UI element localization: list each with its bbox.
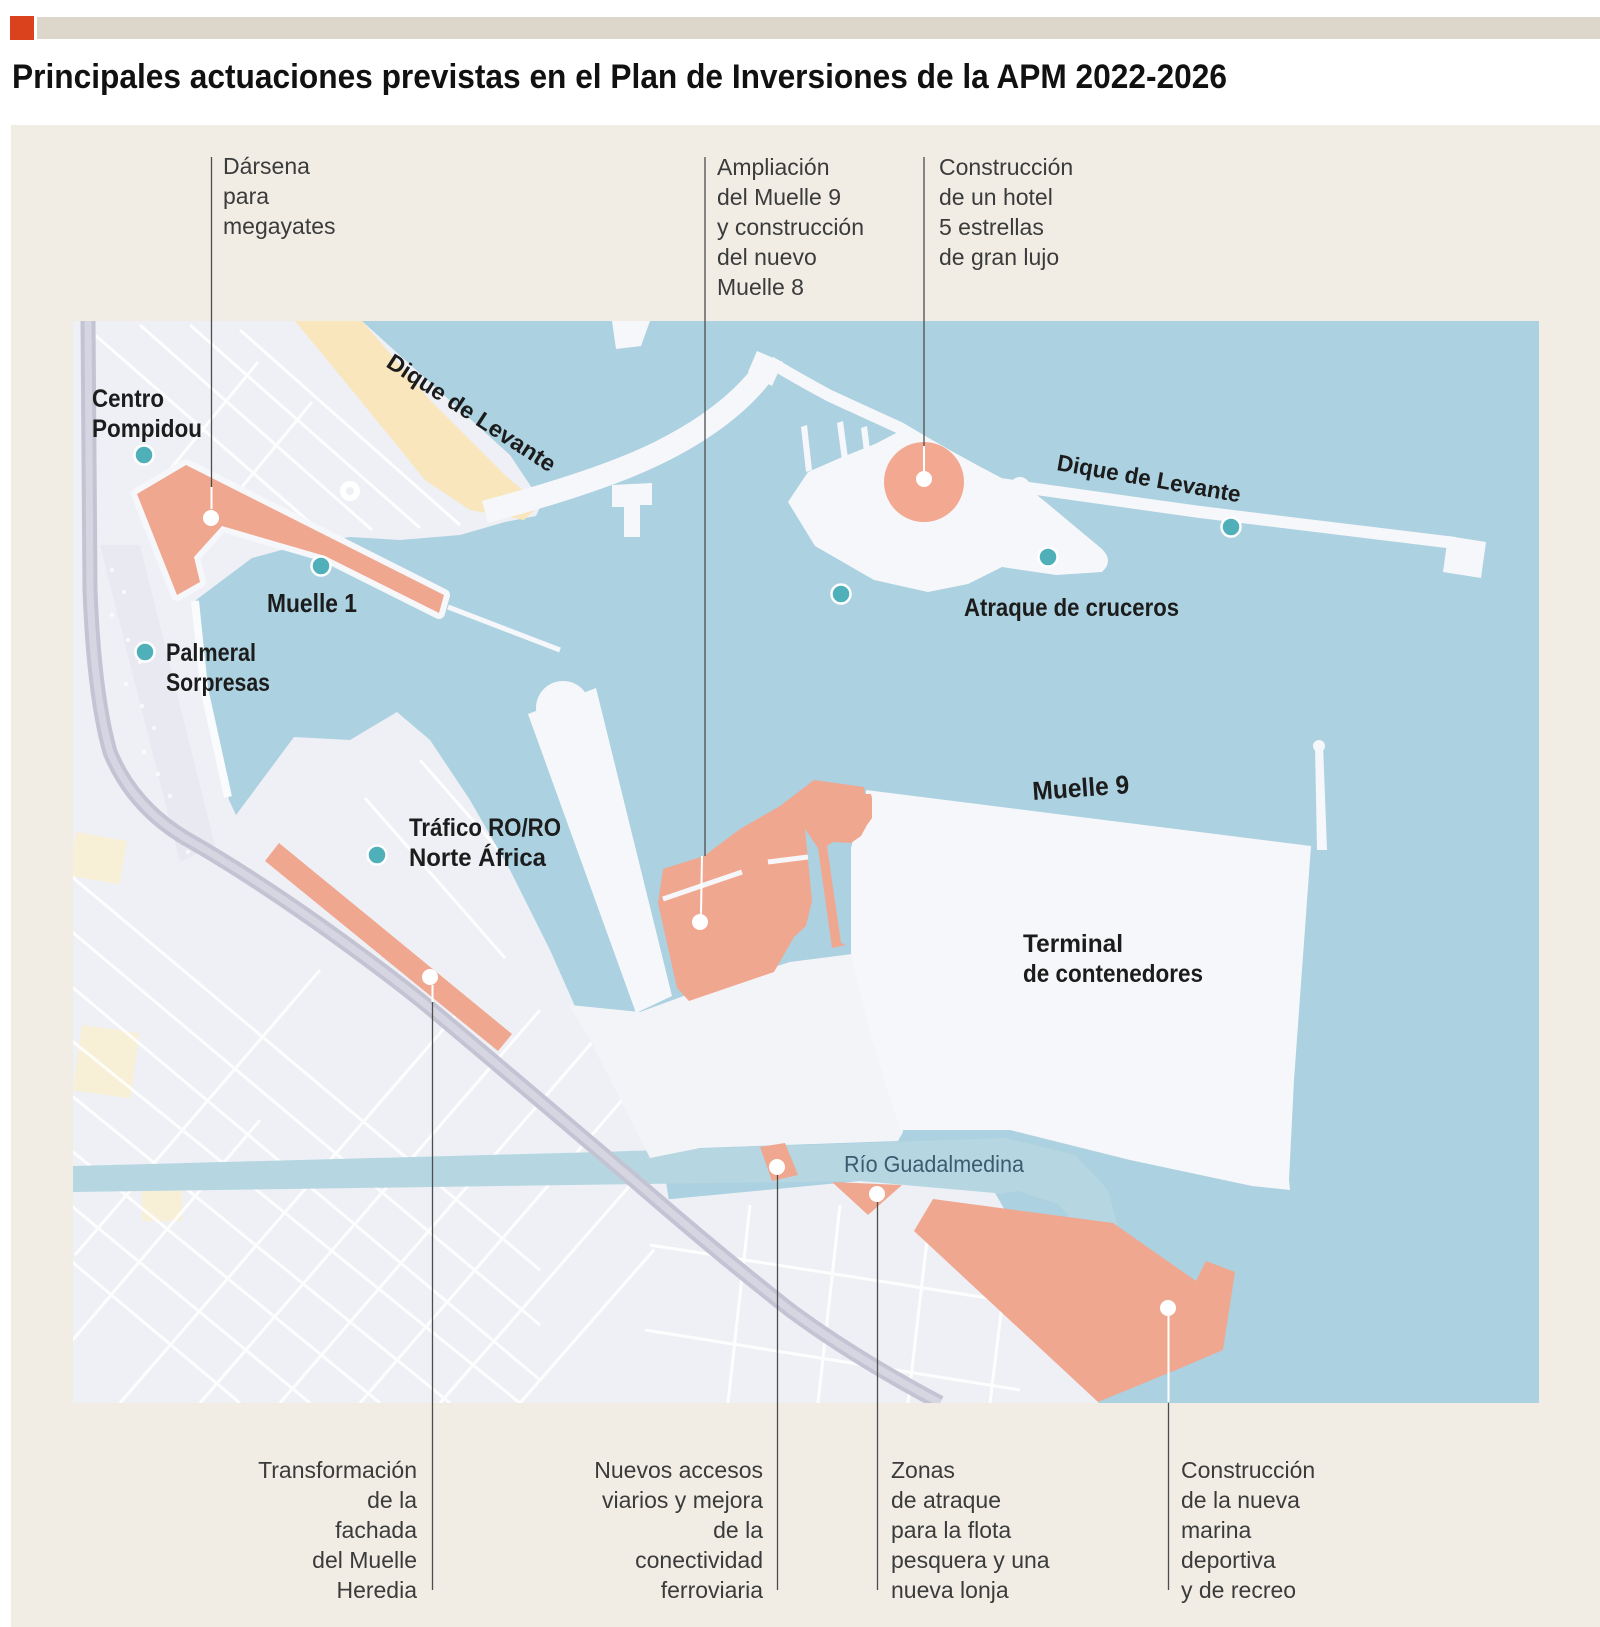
svg-text:pesquera y una: pesquera y una (891, 1547, 1050, 1573)
svg-text:fachada: fachada (335, 1517, 417, 1543)
svg-text:Río Guadalmedina: Río Guadalmedina (844, 1151, 1024, 1177)
svg-text:de gran lujo: de gran lujo (939, 244, 1059, 270)
svg-text:y construcción: y construcción (717, 214, 864, 240)
svg-text:Atraque de cruceros: Atraque de cruceros (964, 594, 1179, 622)
svg-text:Norte África: Norte África (409, 843, 547, 872)
svg-text:viarios y mejora: viarios y mejora (602, 1487, 763, 1513)
svg-text:ferroviaria: ferroviaria (661, 1577, 763, 1603)
svg-text:y de recreo: y de recreo (1181, 1577, 1296, 1603)
svg-text:Terminal: Terminal (1023, 930, 1123, 958)
svg-text:megayates: megayates (223, 213, 336, 239)
svg-text:Pompidou: Pompidou (92, 415, 202, 443)
svg-text:del Muelle 9: del Muelle 9 (717, 184, 841, 210)
svg-text:Construcción: Construcción (1181, 1457, 1315, 1483)
svg-text:para la flota: para la flota (891, 1517, 1011, 1543)
svg-text:de atraque: de atraque (891, 1487, 1001, 1513)
svg-text:del Muelle: del Muelle (312, 1547, 417, 1573)
svg-text:del nuevo: del nuevo (717, 244, 817, 270)
svg-text:Zonas: Zonas (891, 1457, 955, 1483)
svg-text:Dársena: Dársena (223, 153, 310, 179)
svg-text:Muelle 1: Muelle 1 (267, 588, 357, 618)
svg-text:de la: de la (367, 1487, 417, 1513)
svg-text:Muelle 8: Muelle 8 (717, 274, 804, 300)
svg-text:Ampliación: Ampliación (717, 154, 830, 180)
svg-text:Construcción: Construcción (939, 154, 1073, 180)
svg-text:Palmeral: Palmeral (166, 639, 256, 667)
svg-text:Principales actuaciones previs: Principales actuaciones previstas en el … (12, 58, 1227, 96)
svg-text:Tráfico RO/RO: Tráfico RO/RO (409, 814, 561, 842)
svg-text:5 estrellas: 5 estrellas (939, 214, 1044, 240)
svg-text:nueva lonja: nueva lonja (891, 1577, 1009, 1603)
svg-text:conectividad: conectividad (635, 1547, 763, 1573)
svg-text:deportiva: deportiva (1181, 1547, 1276, 1573)
svg-text:de contenedores: de contenedores (1023, 960, 1203, 988)
svg-text:marina: marina (1181, 1517, 1252, 1543)
svg-text:de la nueva: de la nueva (1181, 1487, 1300, 1513)
svg-text:Sorpresas: Sorpresas (166, 669, 270, 697)
svg-text:Nuevos accesos: Nuevos accesos (594, 1457, 763, 1483)
svg-text:Transformación: Transformación (258, 1457, 417, 1483)
svg-text:Centro: Centro (92, 385, 164, 413)
svg-text:para: para (223, 183, 269, 209)
svg-text:Heredia: Heredia (336, 1577, 417, 1603)
svg-text:de un hotel: de un hotel (939, 184, 1053, 210)
svg-text:de la: de la (713, 1517, 763, 1543)
